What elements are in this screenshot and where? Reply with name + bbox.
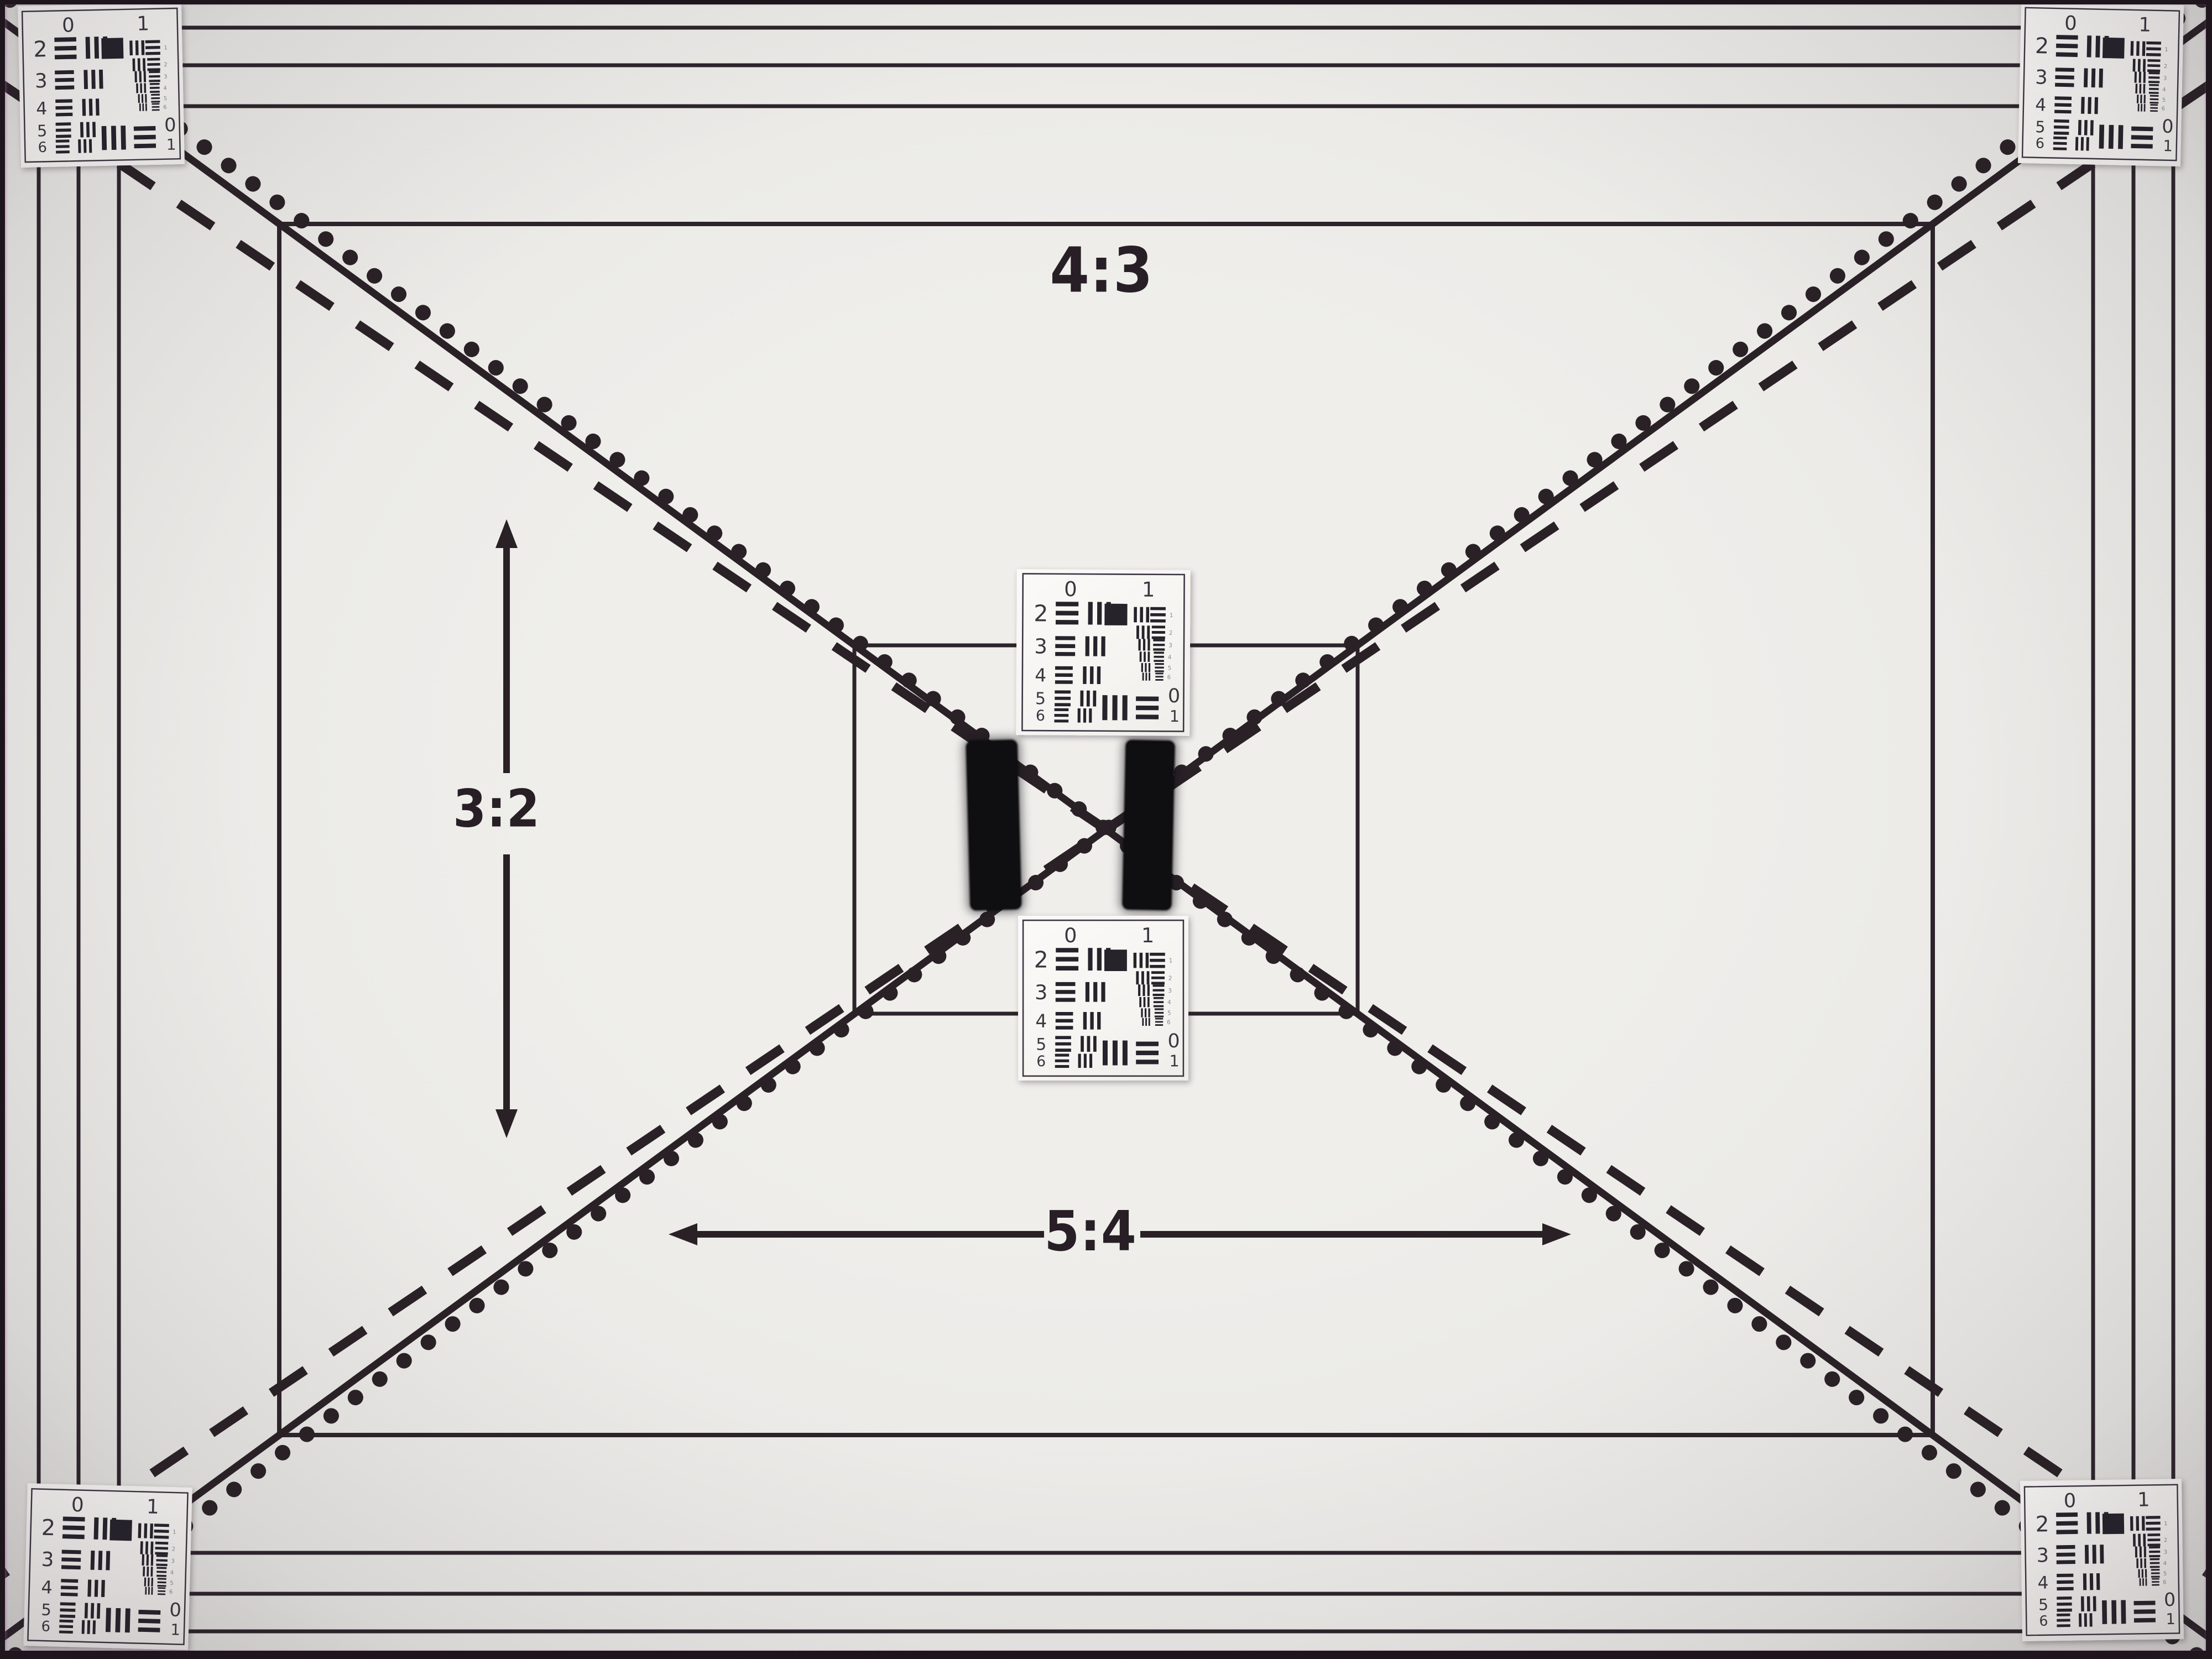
svg-text:0: 0 bbox=[164, 114, 176, 135]
svg-text:2: 2 bbox=[41, 1515, 55, 1541]
svg-text:4: 4 bbox=[1168, 654, 1172, 661]
svg-text:1: 1 bbox=[170, 1620, 181, 1639]
svg-text:5: 5 bbox=[170, 1580, 174, 1587]
aspect-label-4-3: 4:3 bbox=[1050, 239, 1153, 301]
svg-text:1: 1 bbox=[173, 1529, 176, 1535]
svg-text:1: 1 bbox=[1170, 612, 1173, 619]
svg-text:5: 5 bbox=[2162, 97, 2166, 103]
svg-text:1: 1 bbox=[2163, 138, 2173, 155]
svg-text:5: 5 bbox=[164, 96, 168, 102]
svg-text:6: 6 bbox=[41, 1618, 50, 1635]
svg-text:5: 5 bbox=[2035, 118, 2046, 136]
svg-text:5: 5 bbox=[37, 121, 48, 140]
svg-text:1: 1 bbox=[2164, 1521, 2167, 1527]
svg-text:5: 5 bbox=[41, 1600, 51, 1619]
usaf-target-center-bottom: 012345612345601 bbox=[1018, 916, 1188, 1081]
svg-text:3: 3 bbox=[2164, 1550, 2167, 1556]
svg-text:3: 3 bbox=[1034, 634, 1047, 658]
usaf-target-bottom-left: 012345612345601 bbox=[23, 1483, 192, 1650]
ratio-3-2-arrow-upper-head bbox=[495, 519, 518, 548]
svg-text:4: 4 bbox=[1167, 1000, 1171, 1006]
svg-text:0: 0 bbox=[1168, 1030, 1180, 1052]
svg-text:1: 1 bbox=[146, 1495, 159, 1519]
svg-text:2: 2 bbox=[33, 36, 48, 62]
svg-text:5: 5 bbox=[2038, 1595, 2048, 1614]
usaf-chart-svg: 012345612345601 bbox=[2020, 1479, 2184, 1641]
usaf-target-top-left: 012345612345601 bbox=[18, 3, 185, 168]
svg-text:4: 4 bbox=[163, 85, 167, 91]
svg-text:3: 3 bbox=[41, 1548, 54, 1572]
svg-text:0: 0 bbox=[169, 1599, 181, 1621]
svg-text:4: 4 bbox=[170, 1570, 174, 1576]
svg-text:6: 6 bbox=[1036, 707, 1045, 724]
svg-text:6: 6 bbox=[169, 1589, 173, 1595]
ratio-5-4-arrow-right-head bbox=[1542, 1223, 1571, 1245]
svg-text:1: 1 bbox=[164, 45, 168, 51]
svg-text:6: 6 bbox=[1036, 1053, 1046, 1070]
svg-text:1: 1 bbox=[1170, 707, 1180, 726]
svg-text:3: 3 bbox=[1035, 980, 1047, 1004]
svg-text:0: 0 bbox=[1064, 577, 1077, 601]
svg-text:5: 5 bbox=[2163, 1571, 2167, 1577]
svg-text:5: 5 bbox=[1036, 1035, 1046, 1053]
svg-text:3: 3 bbox=[171, 1558, 175, 1564]
svg-text:5: 5 bbox=[1168, 665, 1172, 671]
svg-text:4: 4 bbox=[41, 1578, 53, 1598]
velcro-patch-right bbox=[1123, 740, 1174, 910]
usaf-target-bottom-right: 012345612345601 bbox=[2020, 1479, 2184, 1641]
svg-text:3: 3 bbox=[1168, 988, 1171, 994]
svg-text:1: 1 bbox=[1169, 958, 1172, 964]
usaf-chart-svg: 012345612345601 bbox=[23, 1483, 192, 1650]
svg-text:4: 4 bbox=[2035, 95, 2047, 115]
ratio-5-4-arrow-left-head bbox=[669, 1223, 697, 1245]
aspect-label-5-4: 5:4 bbox=[1044, 1204, 1137, 1259]
svg-text:6: 6 bbox=[2163, 1579, 2166, 1585]
svg-text:6: 6 bbox=[38, 139, 47, 156]
svg-text:4: 4 bbox=[2037, 1573, 2048, 1593]
svg-text:2: 2 bbox=[2164, 1537, 2167, 1543]
svg-text:6: 6 bbox=[2035, 135, 2044, 152]
svg-text:1: 1 bbox=[166, 135, 176, 154]
svg-text:2: 2 bbox=[1034, 946, 1048, 973]
svg-text:2: 2 bbox=[164, 62, 168, 68]
svg-text:1: 1 bbox=[137, 12, 149, 35]
svg-text:1: 1 bbox=[2166, 1611, 2176, 1628]
svg-text:2: 2 bbox=[2164, 64, 2167, 70]
svg-text:2: 2 bbox=[1168, 975, 1172, 982]
svg-text:3: 3 bbox=[2035, 66, 2048, 88]
svg-text:0: 0 bbox=[2064, 1489, 2077, 1512]
lens-test-chart-photo: { "colors": { "background": "#eae9e6", "… bbox=[0, 0, 2212, 1659]
svg-text:0: 0 bbox=[1064, 924, 1077, 947]
svg-text:1: 1 bbox=[2164, 47, 2168, 53]
svg-text:0: 0 bbox=[2064, 12, 2077, 35]
svg-text:1: 1 bbox=[1169, 1051, 1179, 1070]
svg-text:6: 6 bbox=[1167, 1020, 1170, 1026]
svg-text:6: 6 bbox=[1167, 674, 1171, 681]
usaf-chart-svg: 012345612345601 bbox=[1018, 916, 1188, 1081]
svg-text:6: 6 bbox=[2039, 1613, 2048, 1629]
aspect-label-3-2: 3:2 bbox=[453, 783, 540, 835]
svg-text:1: 1 bbox=[1141, 924, 1154, 947]
svg-text:1: 1 bbox=[2137, 1488, 2150, 1511]
svg-text:6: 6 bbox=[2162, 106, 2165, 112]
svg-text:1: 1 bbox=[2138, 13, 2151, 36]
svg-text:2: 2 bbox=[2035, 1512, 2049, 1537]
svg-text:3: 3 bbox=[2036, 1544, 2049, 1567]
svg-text:4: 4 bbox=[1035, 1011, 1047, 1032]
svg-text:0: 0 bbox=[1168, 685, 1180, 707]
svg-text:5: 5 bbox=[1167, 1011, 1171, 1017]
svg-text:3: 3 bbox=[35, 70, 48, 92]
usaf-chart-svg: 012345612345601 bbox=[18, 3, 185, 168]
ratio-3-2-arrow-lower-head bbox=[495, 1109, 518, 1138]
svg-text:5: 5 bbox=[1035, 689, 1046, 708]
svg-text:0: 0 bbox=[2164, 1589, 2176, 1610]
svg-text:3: 3 bbox=[1168, 642, 1172, 649]
velcro-patch-left bbox=[967, 740, 1021, 910]
svg-text:0: 0 bbox=[62, 14, 75, 36]
svg-text:3: 3 bbox=[164, 74, 168, 80]
usaf-target-center-top: 012345612345601 bbox=[1016, 569, 1191, 736]
svg-text:2: 2 bbox=[1169, 630, 1173, 637]
svg-text:6: 6 bbox=[163, 105, 167, 111]
usaf-chart-svg: 012345612345601 bbox=[2018, 2, 2184, 166]
svg-text:2: 2 bbox=[2035, 34, 2049, 59]
svg-text:1: 1 bbox=[1142, 578, 1155, 602]
svg-text:0: 0 bbox=[2162, 116, 2174, 137]
svg-text:2: 2 bbox=[172, 1546, 176, 1552]
svg-text:0: 0 bbox=[71, 1494, 84, 1517]
usaf-target-top-right: 012345612345601 bbox=[2018, 2, 2184, 166]
svg-text:2: 2 bbox=[1034, 600, 1048, 627]
svg-text:4: 4 bbox=[2162, 87, 2166, 93]
svg-text:4: 4 bbox=[2163, 1561, 2167, 1567]
svg-text:4: 4 bbox=[36, 99, 48, 119]
svg-text:4: 4 bbox=[1035, 664, 1046, 686]
svg-text:3: 3 bbox=[2163, 76, 2167, 82]
usaf-chart-svg: 012345612345601 bbox=[1016, 569, 1191, 736]
